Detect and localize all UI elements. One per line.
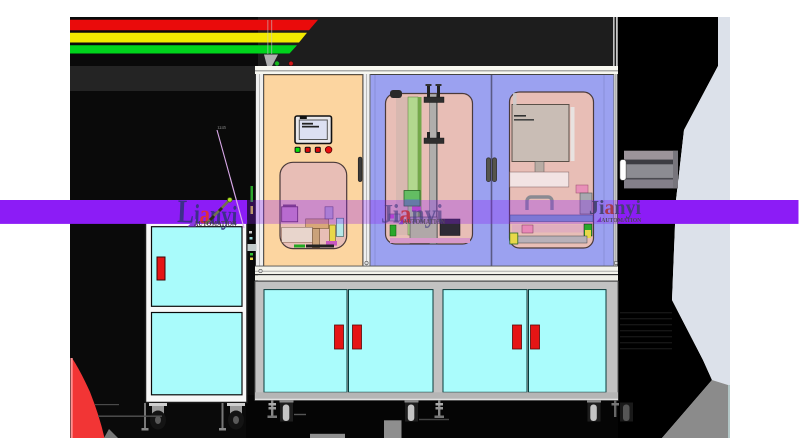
svg-text:AUTOMATION: AUTOMATION [601, 217, 641, 224]
svg-text:Jianyi: Jianyi [589, 198, 642, 219]
svg-text:1245: 1245 [217, 125, 227, 130]
svg-text:AUTOMATION: AUTOMATION [403, 218, 445, 226]
svg-text:AUTOMATION: AUTOMATION [194, 219, 237, 228]
